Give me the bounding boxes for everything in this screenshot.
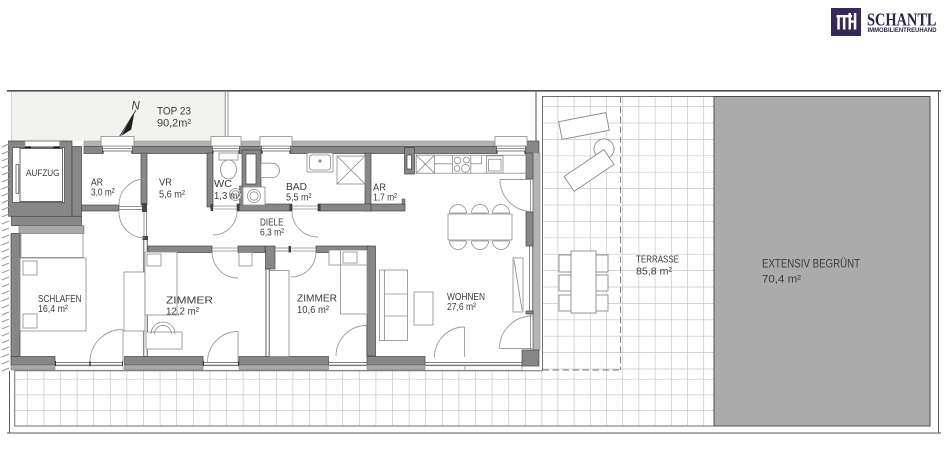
svg-text:SCHANTL: SCHANTL xyxy=(867,10,937,30)
svg-text:EXTENSIV BEGRÜNT: EXTENSIV BEGRÜNT xyxy=(762,259,860,271)
svg-text:5,5 m²: 5,5 m² xyxy=(286,193,312,204)
svg-text:85,8 m²: 85,8 m² xyxy=(636,267,673,278)
svg-text:IMMOBILIENTREUHAND: IMMOBILIENTREUHAND xyxy=(868,28,938,34)
svg-text:3,0 m²: 3,0 m² xyxy=(91,188,115,199)
svg-text:16,4 m²: 16,4 m² xyxy=(38,304,69,315)
svg-text:TERRASSE: TERRASSE xyxy=(636,255,679,266)
svg-text:1,7 m²: 1,7 m² xyxy=(373,193,398,204)
svg-text:ZIMMER: ZIMMER xyxy=(166,295,213,307)
svg-text:5,6 m²: 5,6 m² xyxy=(159,190,186,201)
svg-text:6,3 m²: 6,3 m² xyxy=(260,228,285,239)
svg-text:70,4 m²: 70,4 m² xyxy=(762,274,801,286)
svg-text:WC: WC xyxy=(214,179,232,190)
svg-text:AUFZUG: AUFZUG xyxy=(26,168,60,178)
svg-text:10,6 m²: 10,6 m² xyxy=(297,305,330,316)
svg-text:1,3 m²: 1,3 m² xyxy=(214,191,242,202)
svg-text:ZIMMER: ZIMMER xyxy=(297,293,337,305)
svg-text:VR: VR xyxy=(159,178,172,189)
svg-text:90,2m²: 90,2m² xyxy=(157,118,191,130)
svg-text:BAD: BAD xyxy=(286,182,307,193)
svg-text:27,6 m²: 27,6 m² xyxy=(447,302,477,313)
svg-text:TOP 23: TOP 23 xyxy=(157,106,191,118)
svg-text:12,2 m²: 12,2 m² xyxy=(166,307,200,318)
